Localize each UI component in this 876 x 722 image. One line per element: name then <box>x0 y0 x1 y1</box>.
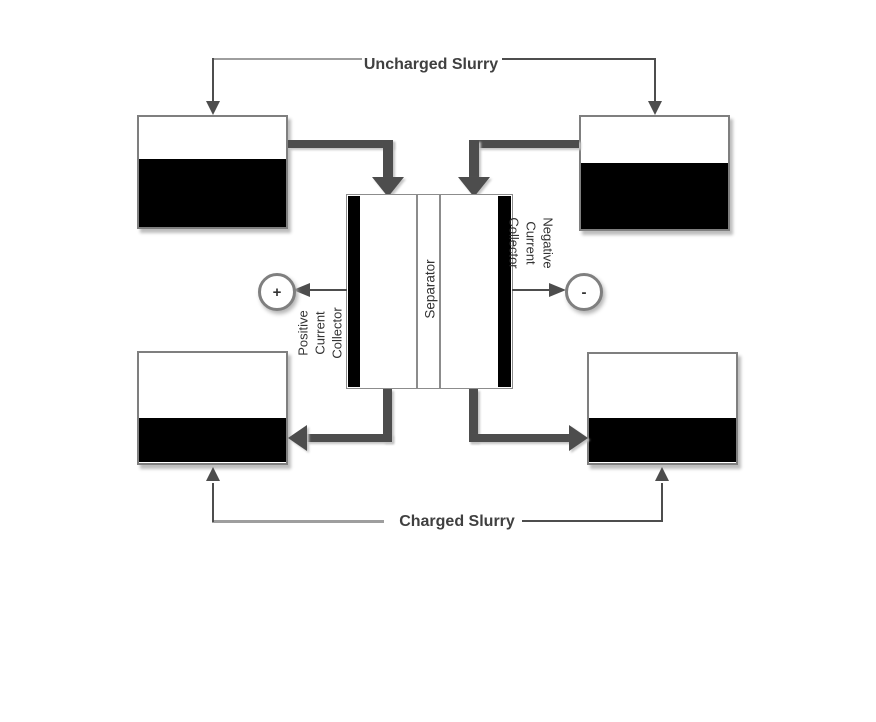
pipe-top-left-vertical <box>383 140 393 178</box>
pipe-top-right-vertical <box>469 140 479 178</box>
uncharged-slurry-tank-left <box>137 115 288 229</box>
negative-terminal-wire <box>512 289 550 291</box>
charged-connector-right-vline <box>661 483 663 522</box>
uncharged-slurry-tank-right <box>579 115 730 231</box>
uncharged-connector-left-vline <box>212 58 214 102</box>
arrow-right-icon <box>549 283 566 297</box>
positive-electrode-bar <box>348 196 360 387</box>
pipe-arrow-left-icon <box>288 425 307 451</box>
uncharged-slurry-label: Uncharged Slurry <box>364 56 498 74</box>
arrow-down-icon <box>206 101 220 115</box>
slurry-fill <box>589 418 736 462</box>
arrow-up-icon <box>206 467 220 481</box>
uncharged-connector-left-hline <box>212 58 362 60</box>
negative-current-collector-label: Negative Current Collector <box>506 217 557 268</box>
slurry-fill <box>581 163 728 229</box>
charged-slurry-label: Charged Slurry <box>399 513 515 531</box>
arrow-up-icon <box>655 467 669 481</box>
positive-terminal: + <box>258 273 296 311</box>
charged-connector-right-hline <box>522 520 663 522</box>
minus-icon: - <box>582 284 587 301</box>
pipe-arrow-right-icon <box>569 425 588 451</box>
plus-icon: + <box>273 284 282 301</box>
pipe-bottom-left-horizontal <box>306 434 392 442</box>
positive-current-collector-label: Positive Current Collector <box>295 307 346 358</box>
slurry-fill <box>139 418 286 462</box>
charged-slurry-tank-right <box>587 352 738 465</box>
charged-slurry-tank-left <box>137 351 288 465</box>
charged-connector-left-hline <box>212 520 384 523</box>
pipe-bottom-right-horizontal <box>469 434 569 442</box>
uncharged-connector-right-hline <box>502 58 656 60</box>
positive-terminal-wire <box>310 289 347 291</box>
separator-label: Separator <box>423 259 438 318</box>
pipe-top-right-horizontal <box>469 140 579 148</box>
uncharged-connector-right-vline <box>654 58 656 102</box>
charged-connector-left-vline <box>212 483 214 522</box>
flow-battery-diagram: Uncharged Slurry Separator Positive Curr… <box>0 0 876 722</box>
negative-terminal: - <box>565 273 603 311</box>
slurry-fill <box>139 159 286 227</box>
arrow-down-icon <box>648 101 662 115</box>
pipe-top-left-horizontal <box>288 140 393 148</box>
